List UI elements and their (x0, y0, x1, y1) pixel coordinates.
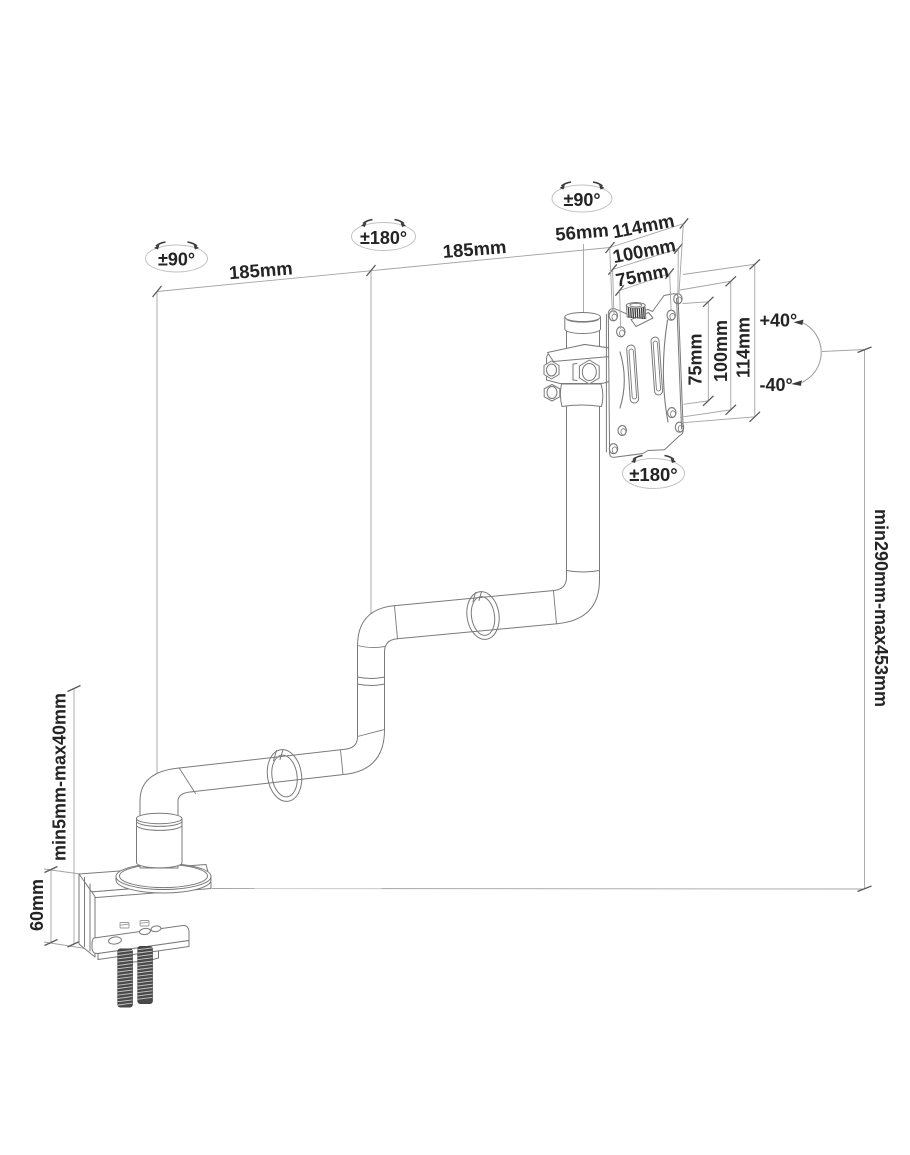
svg-text:100mm: 100mm (711, 320, 731, 382)
svg-text:60mm: 60mm (27, 879, 47, 931)
svg-text:±90°: ±90° (158, 250, 195, 270)
svg-text:114mm: 114mm (734, 317, 754, 378)
svg-text:min5mm-max40mm: min5mm-max40mm (50, 693, 70, 861)
svg-text:±90°: ±90° (563, 190, 600, 210)
svg-text:±180°: ±180° (629, 464, 677, 485)
svg-text:±180°: ±180° (360, 228, 407, 248)
svg-text:min290mm-max453mm: min290mm-max453mm (871, 509, 891, 707)
svg-text:+40°: +40° (760, 311, 798, 331)
svg-text:75mm: 75mm (686, 333, 706, 385)
svg-text:-40°: -40° (760, 375, 793, 395)
